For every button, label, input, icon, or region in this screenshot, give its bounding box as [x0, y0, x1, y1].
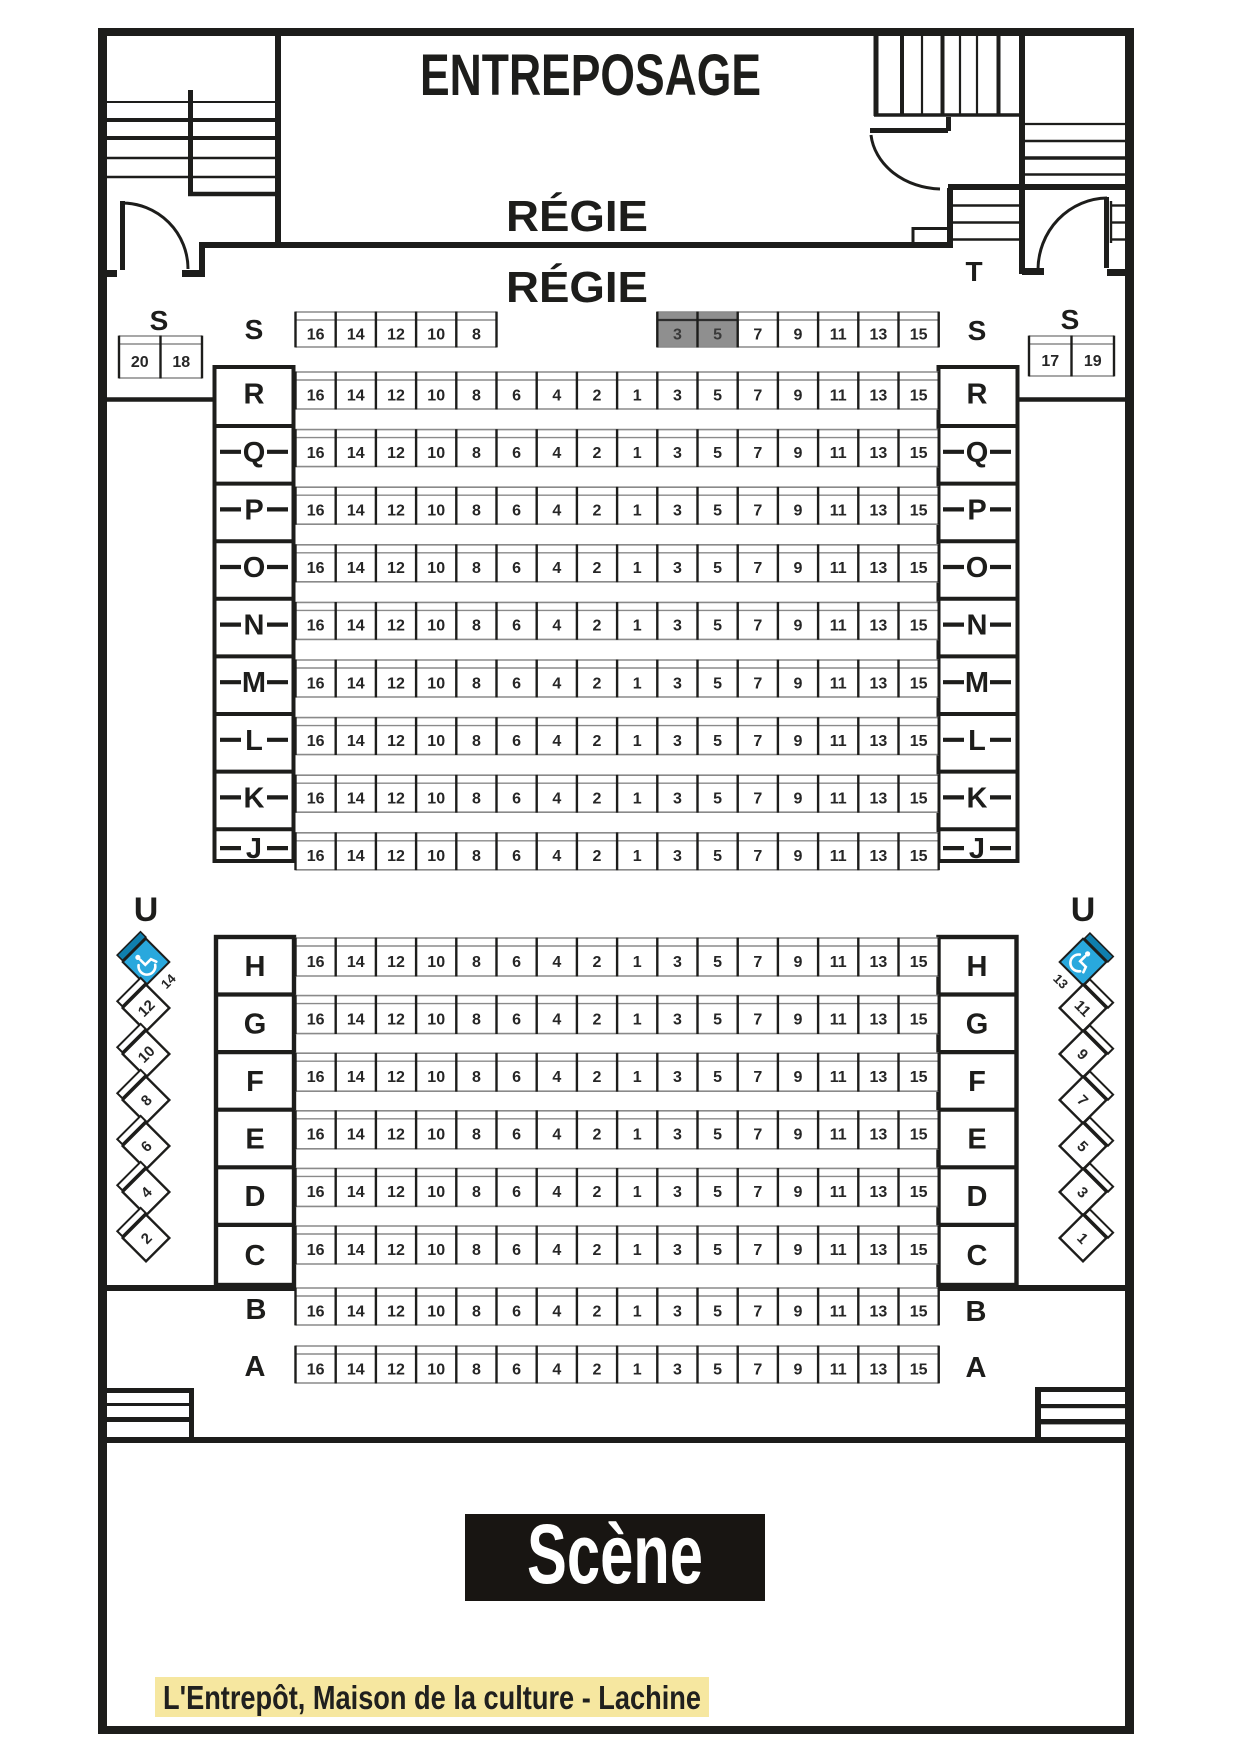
svg-text:1: 1 — [633, 848, 642, 865]
svg-text:13: 13 — [870, 790, 888, 807]
svg-text:2: 2 — [593, 618, 602, 635]
svg-text:12: 12 — [387, 1127, 405, 1144]
svg-text:13: 13 — [870, 1242, 888, 1259]
svg-text:Q: Q — [243, 437, 266, 469]
svg-text:7: 7 — [753, 326, 762, 343]
svg-text:2: 2 — [593, 1184, 602, 1201]
svg-text:3: 3 — [673, 618, 682, 635]
svg-text:13: 13 — [870, 445, 888, 462]
svg-text:6: 6 — [512, 1242, 521, 1259]
svg-text:U: U — [1071, 891, 1096, 929]
svg-text:10: 10 — [427, 1303, 445, 1320]
svg-text:16: 16 — [307, 954, 325, 971]
svg-text:4: 4 — [552, 675, 561, 692]
svg-text:13: 13 — [870, 954, 888, 971]
svg-text:Scène: Scène — [527, 1507, 703, 1601]
svg-text:5: 5 — [713, 387, 722, 404]
svg-text:11: 11 — [830, 1011, 847, 1028]
svg-text:11: 11 — [830, 733, 847, 750]
svg-text:15: 15 — [910, 618, 928, 635]
svg-text:3: 3 — [673, 502, 682, 519]
svg-text:2: 2 — [593, 848, 602, 865]
svg-text:8: 8 — [472, 733, 481, 750]
svg-text:3: 3 — [673, 790, 682, 807]
svg-text:15: 15 — [910, 502, 928, 519]
svg-text:2: 2 — [593, 954, 602, 971]
svg-text:11: 11 — [830, 560, 847, 577]
svg-text:9: 9 — [794, 1011, 803, 1028]
svg-text:D: D — [245, 1181, 266, 1213]
svg-text:16: 16 — [307, 1127, 325, 1144]
svg-text:B: B — [246, 1294, 267, 1326]
svg-text:19: 19 — [1084, 353, 1102, 370]
svg-text:15: 15 — [910, 954, 928, 971]
svg-text:9: 9 — [794, 790, 803, 807]
svg-text:7: 7 — [753, 502, 762, 519]
svg-text:9: 9 — [794, 560, 803, 577]
svg-text:14: 14 — [347, 1361, 365, 1378]
svg-text:S: S — [245, 314, 264, 345]
svg-text:10: 10 — [427, 733, 445, 750]
svg-text:11: 11 — [830, 618, 847, 635]
svg-text:R: R — [244, 379, 265, 411]
svg-text:8: 8 — [472, 387, 481, 404]
svg-text:13: 13 — [870, 1361, 888, 1378]
svg-text:11: 11 — [830, 1184, 847, 1201]
svg-text:12: 12 — [387, 445, 405, 462]
svg-text:1: 1 — [633, 502, 642, 519]
svg-text:11: 11 — [830, 675, 847, 692]
svg-text:7: 7 — [753, 1361, 762, 1378]
svg-text:10: 10 — [427, 326, 445, 343]
svg-text:2: 2 — [593, 1361, 602, 1378]
svg-text:10: 10 — [427, 560, 445, 577]
svg-text:16: 16 — [307, 1242, 325, 1259]
svg-text:1: 1 — [633, 1361, 642, 1378]
svg-text:7: 7 — [753, 1011, 762, 1028]
svg-text:10: 10 — [427, 502, 445, 519]
svg-text:14: 14 — [347, 618, 365, 635]
svg-text:12: 12 — [387, 954, 405, 971]
svg-text:4: 4 — [552, 1069, 561, 1086]
svg-text:12: 12 — [387, 1011, 405, 1028]
svg-text:7: 7 — [753, 1242, 762, 1259]
svg-text:6: 6 — [512, 1069, 521, 1086]
svg-text:13: 13 — [870, 387, 888, 404]
svg-text:8: 8 — [472, 1361, 481, 1378]
svg-text:4: 4 — [552, 1184, 561, 1201]
svg-text:11: 11 — [830, 502, 847, 519]
svg-text:M: M — [965, 667, 989, 699]
svg-text:16: 16 — [307, 326, 325, 343]
svg-text:15: 15 — [910, 387, 928, 404]
svg-text:13: 13 — [870, 1127, 888, 1144]
svg-text:8: 8 — [472, 502, 481, 519]
svg-text:7: 7 — [753, 1303, 762, 1320]
svg-text:3: 3 — [673, 326, 682, 343]
svg-text:15: 15 — [910, 1127, 928, 1144]
svg-text:1: 1 — [633, 675, 642, 692]
svg-text:3: 3 — [673, 954, 682, 971]
svg-text:16: 16 — [307, 618, 325, 635]
svg-text:12: 12 — [387, 1303, 405, 1320]
svg-text:10: 10 — [427, 1127, 445, 1144]
svg-text:K: K — [967, 782, 988, 814]
svg-text:2: 2 — [593, 733, 602, 750]
svg-text:13: 13 — [870, 1011, 888, 1028]
svg-text:13: 13 — [870, 1184, 888, 1201]
svg-text:6: 6 — [512, 675, 521, 692]
svg-text:15: 15 — [910, 1242, 928, 1259]
svg-text:ENTREPOSAGE: ENTREPOSAGE — [420, 43, 761, 108]
svg-text:10: 10 — [427, 1242, 445, 1259]
svg-text:RÉGIE: RÉGIE — [506, 191, 648, 241]
svg-text:7: 7 — [753, 1184, 762, 1201]
svg-text:10: 10 — [427, 848, 445, 865]
svg-text:6: 6 — [512, 733, 521, 750]
svg-text:5: 5 — [713, 560, 722, 577]
svg-text:1: 1 — [633, 1069, 642, 1086]
svg-text:1: 1 — [633, 445, 642, 462]
svg-text:9: 9 — [794, 1069, 803, 1086]
svg-text:14: 14 — [347, 387, 365, 404]
svg-text:3: 3 — [673, 848, 682, 865]
svg-text:15: 15 — [910, 1361, 928, 1378]
svg-text:2: 2 — [593, 1069, 602, 1086]
svg-text:5: 5 — [713, 675, 722, 692]
svg-text:6: 6 — [512, 1127, 521, 1144]
svg-text:S: S — [150, 305, 169, 336]
svg-text:16: 16 — [307, 675, 325, 692]
svg-text:10: 10 — [427, 618, 445, 635]
svg-text:3: 3 — [673, 733, 682, 750]
svg-text:1: 1 — [633, 560, 642, 577]
svg-text:10: 10 — [427, 1011, 445, 1028]
svg-text:9: 9 — [794, 954, 803, 971]
svg-text:D: D — [967, 1181, 988, 1213]
svg-text:E: E — [245, 1124, 264, 1156]
svg-text:5: 5 — [713, 618, 722, 635]
svg-text:RÉGIE: RÉGIE — [506, 262, 648, 312]
svg-text:7: 7 — [753, 560, 762, 577]
svg-text:14: 14 — [347, 954, 365, 971]
svg-text:S: S — [968, 315, 987, 346]
svg-text:5: 5 — [713, 1127, 722, 1144]
svg-text:2: 2 — [593, 502, 602, 519]
svg-text:2: 2 — [593, 1242, 602, 1259]
svg-text:4: 4 — [552, 954, 561, 971]
svg-text:4: 4 — [552, 848, 561, 865]
svg-text:6: 6 — [512, 502, 521, 519]
svg-text:P: P — [244, 494, 263, 526]
svg-text:1: 1 — [633, 1184, 642, 1201]
svg-text:G: G — [244, 1008, 267, 1040]
svg-text:13: 13 — [870, 1069, 888, 1086]
svg-text:13: 13 — [870, 502, 888, 519]
svg-text:4: 4 — [552, 445, 561, 462]
svg-text:12: 12 — [387, 502, 405, 519]
svg-text:6: 6 — [512, 618, 521, 635]
svg-text:15: 15 — [910, 848, 928, 865]
svg-text:2: 2 — [593, 1303, 602, 1320]
svg-text:14: 14 — [347, 790, 365, 807]
svg-text:1: 1 — [633, 387, 642, 404]
svg-text:16: 16 — [307, 1069, 325, 1086]
svg-text:14: 14 — [347, 1127, 365, 1144]
svg-text:16: 16 — [307, 733, 325, 750]
svg-text:C: C — [967, 1240, 988, 1272]
svg-text:2: 2 — [593, 387, 602, 404]
svg-text:12: 12 — [387, 790, 405, 807]
svg-text:11: 11 — [830, 848, 847, 865]
svg-text:9: 9 — [794, 1127, 803, 1144]
svg-text:8: 8 — [472, 790, 481, 807]
svg-text:T: T — [965, 256, 982, 287]
svg-text:5: 5 — [713, 1069, 722, 1086]
svg-text:N: N — [967, 610, 988, 642]
svg-text:16: 16 — [307, 790, 325, 807]
svg-text:8: 8 — [472, 1127, 481, 1144]
svg-text:10: 10 — [427, 675, 445, 692]
svg-text:7: 7 — [753, 675, 762, 692]
svg-text:10: 10 — [427, 1184, 445, 1201]
svg-text:O: O — [966, 552, 989, 584]
svg-text:4: 4 — [552, 1303, 561, 1320]
svg-text:16: 16 — [307, 502, 325, 519]
svg-text:7: 7 — [753, 790, 762, 807]
svg-text:4: 4 — [552, 790, 561, 807]
svg-text:16: 16 — [307, 387, 325, 404]
svg-text:6: 6 — [512, 1011, 521, 1028]
svg-text:14: 14 — [347, 1303, 365, 1320]
svg-text:9: 9 — [794, 675, 803, 692]
svg-text:G: G — [966, 1008, 989, 1040]
svg-text:F: F — [246, 1066, 264, 1098]
svg-text:4: 4 — [552, 733, 561, 750]
svg-text:A: A — [245, 1351, 266, 1383]
svg-text:U: U — [134, 891, 159, 929]
svg-text:15: 15 — [910, 733, 928, 750]
svg-text:11: 11 — [830, 954, 847, 971]
svg-text:12: 12 — [387, 1242, 405, 1259]
svg-text:11: 11 — [830, 1127, 847, 1144]
svg-text:7: 7 — [753, 618, 762, 635]
svg-text:8: 8 — [472, 560, 481, 577]
svg-text:4: 4 — [552, 1242, 561, 1259]
svg-text:12: 12 — [387, 848, 405, 865]
svg-text:8: 8 — [472, 1242, 481, 1259]
svg-text:15: 15 — [910, 675, 928, 692]
svg-text:5: 5 — [713, 1361, 722, 1378]
svg-text:5: 5 — [713, 954, 722, 971]
svg-text:12: 12 — [387, 618, 405, 635]
svg-text:15: 15 — [910, 326, 928, 343]
svg-text:13: 13 — [870, 1303, 888, 1320]
svg-text:3: 3 — [673, 445, 682, 462]
svg-text:10: 10 — [427, 445, 445, 462]
svg-text:9: 9 — [794, 387, 803, 404]
svg-text:7: 7 — [753, 1069, 762, 1086]
svg-text:8: 8 — [472, 954, 481, 971]
svg-text:E: E — [967, 1124, 986, 1156]
svg-text:15: 15 — [910, 1069, 928, 1086]
svg-text:F: F — [968, 1066, 986, 1098]
svg-text:6: 6 — [512, 954, 521, 971]
svg-text:10: 10 — [427, 1361, 445, 1378]
svg-text:16: 16 — [307, 560, 325, 577]
svg-text:17: 17 — [1041, 353, 1059, 370]
svg-text:K: K — [244, 782, 265, 814]
svg-text:3: 3 — [673, 1184, 682, 1201]
svg-text:5: 5 — [713, 1184, 722, 1201]
svg-text:14: 14 — [347, 445, 365, 462]
svg-text:11: 11 — [830, 1361, 847, 1378]
svg-text:11: 11 — [830, 1069, 847, 1086]
svg-text:P: P — [967, 494, 986, 526]
svg-text:13: 13 — [870, 326, 888, 343]
svg-text:6: 6 — [512, 445, 521, 462]
svg-text:14: 14 — [347, 675, 365, 692]
svg-text:12: 12 — [387, 326, 405, 343]
svg-text:8: 8 — [472, 1069, 481, 1086]
svg-text:6: 6 — [512, 1184, 521, 1201]
svg-text:5: 5 — [713, 445, 722, 462]
svg-text:J: J — [246, 833, 262, 865]
svg-text:9: 9 — [794, 445, 803, 462]
svg-text:10: 10 — [427, 954, 445, 971]
svg-text:7: 7 — [753, 445, 762, 462]
svg-text:5: 5 — [713, 1303, 722, 1320]
svg-text:12: 12 — [387, 1184, 405, 1201]
svg-text:7: 7 — [753, 733, 762, 750]
svg-text:13: 13 — [870, 675, 888, 692]
svg-text:4: 4 — [552, 502, 561, 519]
svg-text:5: 5 — [713, 733, 722, 750]
svg-text:4: 4 — [552, 618, 561, 635]
svg-text:13: 13 — [870, 560, 888, 577]
svg-text:4: 4 — [552, 1011, 561, 1028]
svg-text:L: L — [968, 725, 986, 757]
svg-text:8: 8 — [472, 1184, 481, 1201]
svg-text:6: 6 — [512, 1361, 521, 1378]
svg-text:C: C — [245, 1240, 266, 1272]
svg-text:14: 14 — [347, 1184, 365, 1201]
svg-text:12: 12 — [387, 560, 405, 577]
svg-text:10: 10 — [427, 1069, 445, 1086]
svg-text:S: S — [1061, 304, 1080, 335]
svg-text:5: 5 — [713, 326, 722, 343]
svg-text:3: 3 — [673, 560, 682, 577]
svg-text:14: 14 — [347, 1069, 365, 1086]
svg-text:9: 9 — [794, 1242, 803, 1259]
svg-text:8: 8 — [472, 618, 481, 635]
svg-text:4: 4 — [552, 560, 561, 577]
svg-text:12: 12 — [387, 1069, 405, 1086]
svg-text:9: 9 — [794, 848, 803, 865]
svg-text:7: 7 — [753, 954, 762, 971]
svg-text:8: 8 — [472, 675, 481, 692]
svg-text:18: 18 — [172, 354, 190, 371]
svg-text:N: N — [244, 610, 265, 642]
svg-text:14: 14 — [347, 1242, 365, 1259]
svg-text:8: 8 — [472, 1011, 481, 1028]
svg-text:L: L — [245, 725, 263, 757]
svg-text:1: 1 — [633, 1011, 642, 1028]
svg-text:13: 13 — [870, 733, 888, 750]
svg-text:M: M — [242, 667, 266, 699]
svg-text:1: 1 — [633, 1127, 642, 1144]
svg-text:7: 7 — [753, 387, 762, 404]
svg-text:15: 15 — [910, 445, 928, 462]
svg-text:11: 11 — [830, 326, 847, 343]
svg-text:2: 2 — [593, 1011, 602, 1028]
svg-text:8: 8 — [472, 848, 481, 865]
svg-text:15: 15 — [910, 1011, 928, 1028]
svg-text:4: 4 — [552, 1361, 561, 1378]
svg-text:6: 6 — [512, 387, 521, 404]
svg-text:16: 16 — [307, 848, 325, 865]
svg-text:5: 5 — [713, 790, 722, 807]
svg-text:11: 11 — [830, 1303, 847, 1320]
svg-text:2: 2 — [593, 1127, 602, 1144]
svg-text:14: 14 — [347, 502, 365, 519]
svg-text:12: 12 — [387, 675, 405, 692]
svg-text:3: 3 — [673, 1361, 682, 1378]
svg-text:13: 13 — [870, 618, 888, 635]
svg-text:B: B — [966, 1296, 987, 1328]
svg-text:10: 10 — [427, 790, 445, 807]
svg-text:11: 11 — [830, 445, 847, 462]
svg-text:2: 2 — [593, 790, 602, 807]
svg-text:7: 7 — [753, 1127, 762, 1144]
svg-text:20: 20 — [131, 354, 149, 371]
svg-text:15: 15 — [910, 1184, 928, 1201]
svg-text:16: 16 — [307, 1011, 325, 1028]
svg-text:4: 4 — [552, 387, 561, 404]
svg-text:1: 1 — [633, 1303, 642, 1320]
svg-text:14: 14 — [347, 326, 365, 343]
svg-text:3: 3 — [673, 1242, 682, 1259]
svg-text:8: 8 — [472, 445, 481, 462]
svg-text:15: 15 — [910, 790, 928, 807]
svg-text:3: 3 — [673, 1127, 682, 1144]
svg-text:2: 2 — [593, 675, 602, 692]
svg-text:12: 12 — [387, 733, 405, 750]
svg-text:4: 4 — [552, 1127, 561, 1144]
svg-text:1: 1 — [633, 733, 642, 750]
svg-text:14: 14 — [347, 560, 365, 577]
svg-text:1: 1 — [633, 1242, 642, 1259]
svg-text:10: 10 — [427, 387, 445, 404]
svg-text:11: 11 — [830, 1242, 847, 1259]
svg-text:6: 6 — [512, 560, 521, 577]
svg-text:13: 13 — [870, 848, 888, 865]
svg-text:3: 3 — [673, 675, 682, 692]
svg-text:R: R — [967, 379, 988, 411]
svg-text:14: 14 — [347, 848, 365, 865]
svg-text:16: 16 — [307, 1184, 325, 1201]
svg-text:H: H — [967, 951, 988, 983]
svg-text:5: 5 — [713, 1242, 722, 1259]
svg-text:2: 2 — [593, 560, 602, 577]
svg-text:J: J — [969, 833, 985, 865]
svg-text:3: 3 — [673, 1303, 682, 1320]
svg-text:11: 11 — [830, 790, 847, 807]
svg-text:16: 16 — [307, 445, 325, 462]
svg-text:12: 12 — [387, 387, 405, 404]
svg-text:6: 6 — [512, 1303, 521, 1320]
svg-text:9: 9 — [794, 1184, 803, 1201]
